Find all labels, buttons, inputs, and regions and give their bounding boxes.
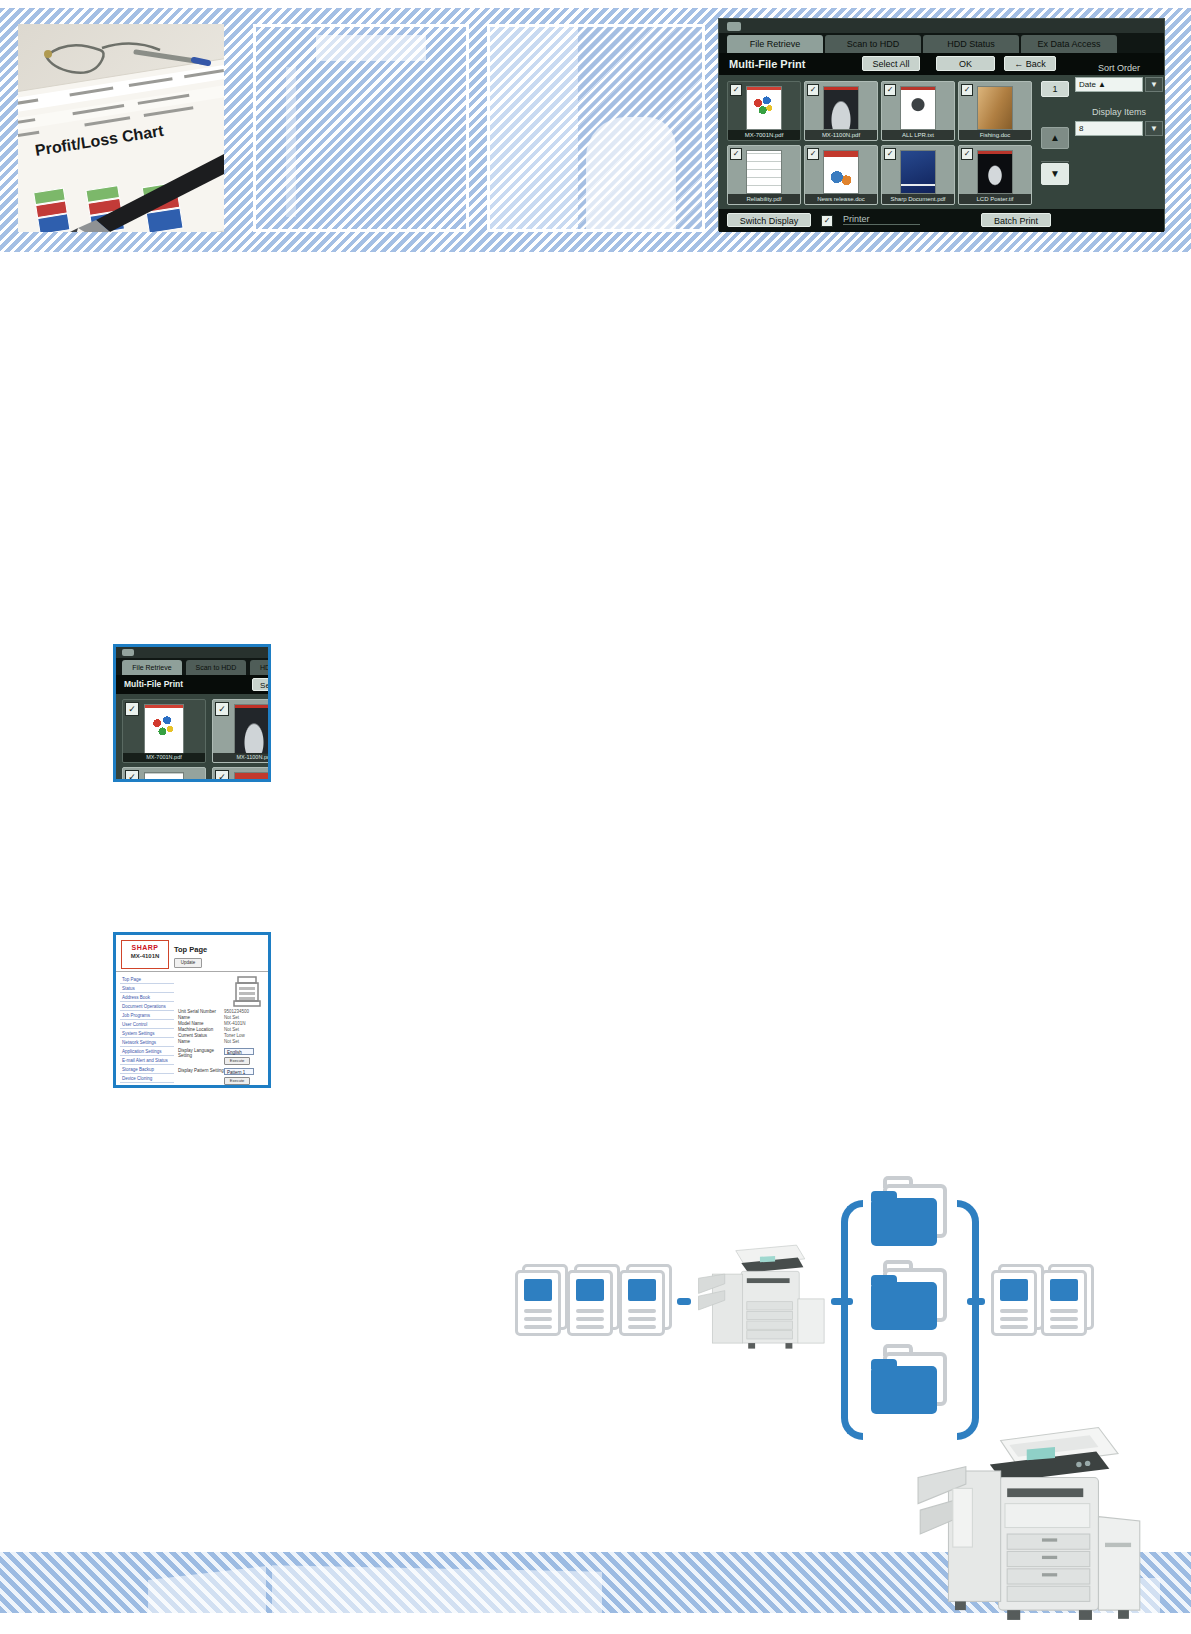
file-thumbnail: [977, 150, 1013, 194]
file-name: MX-7001N.pdf: [123, 753, 205, 762]
file-name: Fishing.doc: [959, 130, 1031, 140]
panel-tab-row: File Retrieve Scan to HDD HD: [116, 658, 268, 675]
connector-line: [967, 1298, 985, 1305]
file-cell[interactable]: ✓ ALL LPR.txt: [881, 81, 955, 141]
scroll-down-button[interactable]: ▼: [1041, 163, 1069, 185]
top-banner: Profit/Loss Chart: [0, 8, 1191, 252]
chevron-down-icon[interactable]: ▼: [1145, 121, 1163, 136]
web-sidebar: Top Page Status Address Book Document Op…: [120, 975, 174, 1088]
file-cell[interactable]: ✓: [122, 767, 206, 782]
select-file-icon[interactable]: ✓: [884, 148, 896, 160]
model-name: MX-4101N: [122, 953, 168, 959]
display-items-label: Display Items: [1075, 107, 1163, 117]
chevron-down-icon[interactable]: ▼: [1145, 77, 1163, 92]
select-file-icon[interactable]: ✓: [215, 770, 229, 782]
update-button[interactable]: Update: [174, 958, 202, 968]
sidebar-item-document-operations[interactable]: Document Operations: [120, 1002, 174, 1011]
file-grid: ✓ MX-7001N.pdf ✓ MX-1100N.pdf ✓ ALL LPR.…: [719, 75, 1164, 209]
file-name: MX-1100N.pdf: [213, 753, 271, 762]
sort-order-dropdown[interactable]: Date ▲ ▼: [1075, 77, 1163, 92]
page-1-button[interactable]: 1: [1041, 81, 1069, 97]
file-cell[interactable]: ✓: [212, 767, 271, 782]
printer-label: Printer: [843, 214, 920, 225]
tab-file-retrieve[interactable]: File Retrieve: [727, 35, 823, 53]
language-execute-button[interactable]: Execute: [224, 1057, 250, 1065]
tab-scan-to-hdd[interactable]: Scan to HDD: [825, 35, 921, 53]
band-highlight: [148, 1566, 266, 1613]
sidebar-item-storage-backup[interactable]: Storage Backup: [120, 1065, 174, 1074]
halftone-figure-highlight: [586, 117, 676, 229]
display-items-value: 8: [1075, 121, 1143, 136]
display-items-dropdown[interactable]: 8 ▼: [1075, 121, 1163, 136]
file-thumbnail: [977, 86, 1013, 130]
home-icon[interactable]: [727, 22, 741, 31]
banner-halftone-box-2: [487, 24, 705, 232]
web-interface-screenshot: SHARP MX-4101N Top Page Update Top Page …: [113, 932, 271, 1088]
file-cell[interactable]: ✓ MX-1100N.pdf: [804, 81, 878, 141]
sharp-logo-box: SHARP MX-4101N: [121, 940, 169, 969]
divider: [116, 971, 268, 972]
file-cell[interactable]: ✓ Fishing.doc: [958, 81, 1032, 141]
web-page-title: Top Page: [174, 945, 207, 954]
file-thumbnail: [234, 704, 271, 754]
file-thumbnail: [900, 86, 936, 130]
halftone-highlight: [316, 35, 426, 61]
file-name: MX-1100N.pdf: [805, 130, 877, 140]
tab-hdd-status-cut[interactable]: HD: [250, 660, 271, 675]
document-icon: [567, 1270, 613, 1336]
home-icon[interactable]: [122, 649, 134, 656]
file-cell[interactable]: ✓ LCD Poster.tif: [958, 145, 1032, 205]
file-thumbnail: [144, 704, 184, 754]
sort-order-value: Date ▲: [1075, 77, 1143, 92]
file-cell[interactable]: ✓ Reliability.pdf: [727, 145, 801, 205]
file-thumbnail: [746, 86, 782, 130]
file-name: ALL LPR.txt: [882, 130, 954, 140]
document-icon: [991, 1270, 1037, 1336]
sidebar-item-application-settings[interactable]: Application Settings: [120, 1047, 174, 1056]
mfp-photo-small: [693, 1235, 831, 1371]
select-file-icon[interactable]: ✓: [884, 84, 896, 96]
sidebar-item-top-page[interactable]: Top Page: [120, 975, 174, 984]
bracket-right: [957, 1200, 979, 1440]
sidebar-item-job-programs[interactable]: Job Programs: [120, 1011, 174, 1020]
file-cell[interactable]: ✓ MX-7001N.pdf: [122, 699, 206, 763]
panel-top-strip: [719, 19, 1164, 33]
back-label: Back: [1026, 59, 1046, 69]
sidebar-item-system-settings[interactable]: System Settings: [120, 1029, 174, 1038]
sharp-logo: SHARP: [122, 944, 168, 951]
printer-check-icon[interactable]: ✓: [821, 215, 833, 227]
sidebar-item-address-book[interactable]: Address Book: [120, 993, 174, 1002]
bracket-left: [841, 1200, 863, 1440]
file-thumbnail: [144, 772, 184, 782]
connector-line: [677, 1298, 691, 1305]
back-arrow-icon: ←: [1014, 59, 1023, 69]
profit-loss-photo-art: Profit/Loss Chart: [18, 24, 224, 232]
document-icon: [619, 1270, 665, 1336]
file-cell[interactable]: ✓ MX-1100N.pdf: [212, 699, 271, 763]
select-all-button[interactable]: Select All: [862, 56, 920, 71]
select-file-icon[interactable]: ✓: [961, 148, 973, 160]
tab-scan-to-hdd[interactable]: Scan to HDD: [186, 660, 246, 675]
profit-loss-photo: Profit/Loss Chart: [18, 24, 224, 232]
panel-title: Multi-File Print: [124, 675, 183, 694]
file-cell[interactable]: ✓ Sharp Document.pdf: [881, 145, 955, 205]
language-setting-label: Display Language Setting: [178, 1048, 224, 1065]
panel-title: Multi-File Print: [729, 53, 805, 75]
file-name: LCD Poster.tif: [959, 194, 1031, 204]
sort-order-label: Sort Order: [1075, 63, 1163, 73]
switch-display-button[interactable]: Switch Display: [727, 213, 811, 227]
file-cell[interactable]: ✓ News release.doc: [804, 145, 878, 205]
tab-file-retrieve[interactable]: File Retrieve: [122, 660, 182, 675]
mfp-photo-large: [905, 1412, 1155, 1634]
file-thumbnail: [900, 150, 936, 194]
halftone-streak: [286, 67, 296, 217]
down-arrow-icon: ▼: [1050, 168, 1060, 179]
file-thumbnail: [234, 772, 271, 782]
file-thumbnail: [823, 86, 859, 130]
field-label: Name: [178, 1039, 224, 1045]
folder-icon: [871, 1276, 949, 1334]
file-thumbnail: [746, 150, 782, 194]
file-thumbnail: [823, 150, 859, 194]
sidebar-item-job-log[interactable]: Job Log: [120, 1083, 174, 1088]
file-name: Sharp Document.pdf: [882, 194, 954, 204]
sidebar-item-user-control[interactable]: User Control: [120, 1020, 174, 1029]
sidebar-item-device-cloning[interactable]: Device Cloning: [120, 1074, 174, 1083]
sidebar-item-network-settings[interactable]: Network Settings: [120, 1038, 174, 1047]
file-name: News release.doc: [805, 194, 877, 204]
folder-icon: [871, 1360, 949, 1418]
language-select[interactable]: English: [224, 1048, 254, 1055]
document-icon: [515, 1270, 561, 1336]
pattern-setting-label: Display Pattern Setting: [178, 1068, 224, 1085]
sidebar-item-status[interactable]: Status: [120, 984, 174, 993]
file-name: MX-7001N.pdf: [728, 130, 800, 140]
file-grid: ✓ MX-7001N.pdf ✓ MX-1100N.pdf ✓ ✓: [116, 694, 268, 779]
scroll-up-button[interactable]: ▲: [1041, 127, 1069, 149]
batch-print-button[interactable]: Batch Print: [981, 213, 1051, 227]
pattern-select[interactable]: Pattern 1: [224, 1068, 254, 1075]
field-value: Not Set: [224, 1039, 264, 1045]
banner-halftone-box-1: [253, 24, 469, 232]
tab-ex-data-access[interactable]: Ex Data Access: [1021, 35, 1117, 53]
mfp-touchscreen-screenshot: File Retrieve Scan to HDD HDD Status Ex …: [718, 18, 1165, 231]
web-main: Unit Serial Number9501234500 NameNot Set…: [178, 975, 264, 1085]
mfp-line-drawing: [232, 975, 262, 1013]
select-file-icon[interactable]: ✓: [125, 770, 139, 782]
select-all-button-cut[interactable]: Se: [252, 678, 271, 691]
select-file-icon[interactable]: ✓: [961, 84, 973, 96]
tab-hdd-status[interactable]: HDD Status: [923, 35, 1019, 53]
panel-bottom-bar: Switch Display ✓ Printer Batch Print: [719, 209, 1164, 232]
file-name: Reliability.pdf: [728, 194, 800, 204]
select-file-icon[interactable]: ✓: [730, 148, 742, 160]
panel-tab-row: File Retrieve Scan to HDD HDD Status Ex …: [719, 33, 1164, 53]
select-file-icon[interactable]: ✓: [807, 84, 819, 96]
sidebar-item-email-alert[interactable]: E-mail Alert and Status: [120, 1056, 174, 1065]
pattern-execute-button[interactable]: Execute: [224, 1077, 250, 1085]
ok-button[interactable]: OK: [936, 56, 995, 71]
folder-icon: [871, 1192, 949, 1250]
select-file-icon[interactable]: ✓: [125, 702, 139, 716]
panel-crop-screenshot: File Retrieve Scan to HDD HD Multi-File …: [113, 644, 271, 782]
panel-top-strip: [116, 647, 268, 658]
up-arrow-icon: ▲: [1050, 132, 1060, 143]
document-icon: [1041, 1270, 1087, 1336]
select-file-icon[interactable]: ✓: [807, 148, 819, 160]
file-cell[interactable]: ✓ MX-7001N.pdf: [727, 81, 801, 141]
select-file-icon[interactable]: ✓: [215, 702, 229, 716]
band-highlight: [272, 1560, 602, 1613]
select-file-icon[interactable]: ✓: [730, 84, 742, 96]
brochure-page: Profit/Loss Chart: [0, 0, 1191, 1634]
panel-title-row: Multi-File Print Se: [116, 675, 268, 694]
back-button[interactable]: ← Back: [1004, 56, 1056, 71]
